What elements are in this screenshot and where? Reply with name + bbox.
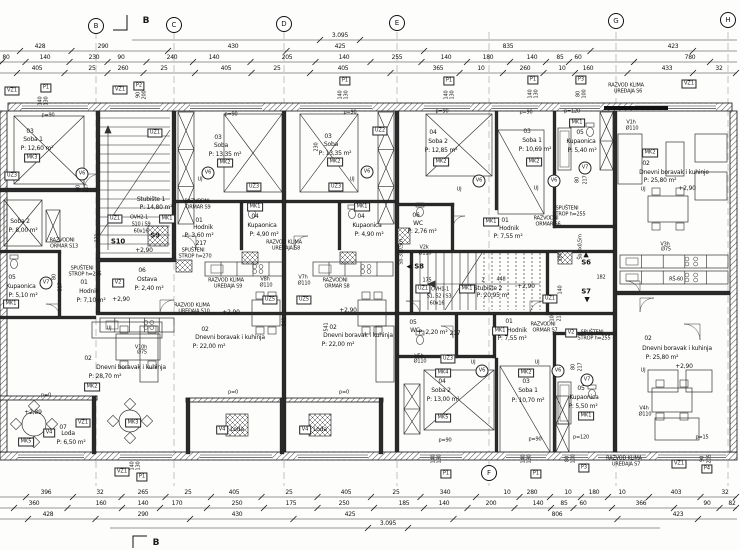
room-label: 01 [501, 218, 508, 224]
room-label: 02 [644, 336, 651, 342]
dim-label: 405 [341, 490, 352, 496]
dim-label: 32 [721, 490, 728, 496]
tag-box: P1 [530, 470, 541, 479]
room-label: P: 2,40 m² [134, 286, 163, 292]
room-label: P: 4,90 m² [354, 232, 383, 238]
dim-label: 180 [589, 490, 600, 496]
dim-label: 260 [520, 66, 531, 72]
dim-label: 250 [339, 501, 350, 507]
tag-box: P1 [440, 470, 451, 479]
room-label: P: 22,00 m² [193, 344, 226, 350]
room-label: S10 [111, 239, 125, 246]
room-label: Ø110 [639, 413, 652, 418]
tag-box: MK2 [433, 158, 449, 167]
dim-label: 90 [703, 501, 710, 507]
room-label: +2,90 [675, 364, 692, 370]
room-label: 130 [528, 455, 533, 464]
tag-box: MK1 [492, 327, 508, 336]
room-label: 90 [701, 456, 706, 462]
room-label: 02 [201, 327, 208, 333]
room-label: STROP h=295 [69, 273, 102, 278]
room-label: UJ [107, 327, 112, 332]
vent-circle: V7 [581, 374, 594, 387]
room-label: UREĐAJA S8 [272, 247, 300, 252]
tag-box: VZ1 [75, 419, 90, 428]
tag-box: P1 [443, 77, 454, 86]
room-label: p=0 [41, 394, 51, 399]
room-label: P: 7,55 m² [497, 336, 526, 342]
room-label: 05 [577, 386, 584, 392]
grid-bubble-f: F [481, 465, 497, 481]
dim-label: 255 [392, 55, 403, 61]
tag-box: V4 [299, 426, 311, 435]
room-label: UREĐAJA S7 [612, 463, 640, 468]
tag-box: MK1 [459, 285, 475, 294]
room-label: WC [413, 221, 423, 227]
dim-label: 32 [715, 66, 722, 72]
room-label: 05 [576, 130, 583, 136]
dim-label: 250 [232, 501, 243, 507]
room-label: P: 22,00 m² [322, 342, 355, 348]
tag-box: UZ3 [440, 355, 455, 364]
room-label: P: 10,69 m² [519, 147, 552, 153]
room-label: UJ [641, 188, 646, 193]
room-label: ▼ [584, 297, 589, 304]
dim-label: 140 [339, 55, 350, 61]
tag-box: UZ1 [415, 285, 430, 294]
room-label: Dnevni boravak i kuhinje [639, 170, 709, 176]
room-label: 60x16 [430, 302, 445, 307]
vent-circle: V6 [202, 167, 215, 180]
dim-label: 260 [118, 66, 129, 72]
dim-label: 835 [503, 44, 514, 50]
room-label: UJ [457, 188, 462, 193]
vent-circle: V6 [473, 175, 486, 188]
room-label: 230 [315, 143, 320, 152]
room-label: UREĐAJA S6 [614, 90, 642, 95]
dim-label: 425 [345, 512, 356, 518]
dim-label: 25 [88, 66, 95, 72]
room-label: 175 [423, 279, 432, 284]
dim-label: 403 [671, 490, 682, 496]
room-label: Soba 1 [23, 137, 43, 143]
dim-label: 140 [441, 55, 452, 61]
room-label: +2,90 [222, 310, 239, 316]
room-label: 130 [137, 462, 142, 471]
room-label: P: 12,85 m² [425, 148, 458, 154]
vent-circle: V6 [548, 175, 561, 188]
tag-box: MK5 [435, 414, 451, 423]
room-label: p=90 [439, 439, 452, 444]
room-label: UREĐAJA S9 [214, 285, 242, 290]
room-label: 03 [324, 134, 331, 140]
room-label: Ø110 [260, 284, 273, 289]
vent-circle: V6 [76, 168, 89, 181]
tag-box: UZ3 [4, 172, 19, 181]
dim-label: 140 [138, 501, 149, 507]
room-label: 130 [438, 455, 443, 464]
room-label: Soba 1 [518, 388, 538, 394]
tag-box: P2 [133, 82, 144, 91]
room-label: 180 [559, 253, 564, 262]
grid-bubble-d: D [276, 16, 292, 32]
room-label: 448 [497, 278, 506, 283]
dim-label: 10 [618, 490, 625, 496]
room-label: P: 7,10 m² [76, 298, 105, 304]
room-label: p=90 [436, 110, 449, 115]
room-label: Soba 1 [522, 138, 542, 144]
dim-label: 80 [2, 55, 9, 61]
room-label: Ø110 [626, 127, 639, 132]
room-label: p=120 [564, 110, 580, 115]
room-label: 03 [214, 135, 221, 141]
dim-label: 10 [477, 66, 484, 72]
room-label: Kupaonica [352, 223, 381, 229]
dim-label: 170 [172, 501, 183, 507]
room-label: ORMAR S9 [186, 206, 211, 211]
room-label: Hodnik [193, 225, 213, 231]
room-label: 541 [283, 318, 288, 327]
tag-box: UZ5 [296, 296, 311, 305]
room-label: Soba [324, 142, 338, 148]
dim-label: 405 [229, 490, 240, 496]
tag-box: P1 [527, 76, 538, 85]
room-label: Hodnik [507, 328, 527, 334]
dim-label: 430 [228, 44, 239, 50]
room-label: S7 [581, 289, 591, 296]
room-label: Kupaonica [6, 284, 35, 290]
dim-label: 25 [160, 66, 167, 72]
tag-box: VZ1 [671, 460, 686, 469]
vent-circle: V6 [476, 365, 489, 378]
floor-plan-page: 03Soba 1P: 12,60 m²Soba 2P: 8,00 m²05Kup… [0, 0, 740, 550]
room-label: Dnevni boravak i kuhinja [323, 333, 393, 339]
room-label: 217 [450, 331, 461, 337]
room-label: 02 [329, 325, 336, 331]
room-label: 100 [583, 90, 588, 99]
dim-label: 428 [43, 512, 54, 518]
room-label: UJ [535, 361, 540, 366]
room-label: 205 [708, 455, 713, 464]
room-label: 01 [505, 319, 512, 325]
tag-box: MK1 [569, 119, 585, 128]
tag-box: MK2 [217, 159, 233, 168]
room-label: P: 3,60 m² [184, 233, 213, 239]
room-label: P: 13,00 m² [427, 397, 460, 403]
dim-label: 423 [673, 512, 684, 518]
tag-box: UZ3 [328, 183, 343, 192]
dim-label: 290 [138, 512, 149, 518]
tag-box: MK3 [125, 419, 141, 428]
vent-circle: V6 [552, 365, 565, 378]
dim-label: 3.095 [380, 521, 396, 527]
tag-box: MK1 [3, 300, 19, 309]
dim-label: 430 [232, 512, 243, 518]
room-label: STROP h=255 [578, 337, 611, 342]
room-label: Soba 2 [428, 139, 448, 145]
room-label: 04 [357, 214, 364, 220]
tag-box: MK1 [483, 218, 499, 227]
dim-label: 428 [35, 44, 46, 50]
room-label: 80 [576, 177, 581, 183]
room-label: 05 [8, 275, 15, 281]
dim-label: 205 [282, 55, 293, 61]
room-label: Soba 2 [431, 388, 451, 394]
room-label: P: 5,50 m² [568, 404, 597, 410]
dim-label: 780 [685, 55, 696, 61]
dim-label: 180 [483, 55, 494, 61]
tag-box: P3 [578, 464, 589, 473]
room-label: ORMAR S13 [50, 245, 78, 250]
room-label: p=90 [529, 438, 542, 443]
room-label: Šb-3x0,5m [400, 239, 405, 264]
room-label: 2 [482, 279, 485, 284]
section-marker-b: B [143, 16, 150, 26]
dim-label: 60 [579, 501, 586, 507]
dim-label: 423 [668, 44, 679, 50]
room-label: Stubište 1 [137, 197, 165, 203]
room-label: 02 [642, 161, 649, 167]
dim-label: 140 [40, 55, 51, 61]
room-label: Ø110 [414, 360, 427, 365]
tag-box: P3 [575, 76, 586, 85]
dim-label: 140 [533, 501, 544, 507]
room-label: P: 14,80 m² [140, 205, 173, 211]
room-label: STROP h=255 [553, 213, 586, 218]
dim-label: 405 [338, 66, 349, 72]
room-label: S8 [414, 264, 424, 271]
tag-box: V2 [112, 279, 124, 288]
tag-box: V2 [565, 329, 577, 338]
room-label: 130 [45, 97, 50, 106]
room-label: 217 [584, 176, 589, 185]
dim-label: 185 [399, 501, 410, 507]
room-label: Dnevni boravak i kuhinja [195, 335, 265, 341]
dim-label: 25 [392, 490, 399, 496]
room-label: UJ [534, 187, 539, 192]
room-label: 217 [85, 184, 90, 193]
room-label: UJ [641, 369, 646, 374]
room-label: Šb-3x0,5m [579, 234, 584, 259]
room-label: UREĐAJA S10 [178, 310, 209, 315]
room-label: 130 [535, 90, 540, 99]
tag-box: VZ1 [114, 468, 129, 477]
dim-label: 366 [636, 501, 647, 507]
plan-labels: 03Soba 1P: 12,60 m²Soba 2P: 8,00 m²05Kup… [0, 0, 740, 550]
tag-box: MK1 [247, 203, 263, 212]
dim-label: 200 [486, 501, 497, 507]
room-label: 06 [138, 268, 145, 274]
tag-box: UZ1 [542, 295, 557, 304]
room-label: P: 2,76 m² [407, 229, 436, 235]
room-label: 04 [438, 379, 445, 385]
room-label: OVH2-1 [130, 216, 148, 221]
tag-box: MK4 [435, 369, 451, 378]
tag-box: MK2 [518, 369, 534, 378]
room-label: +2,89 [24, 410, 41, 416]
dim-label: 140 [439, 501, 450, 507]
room-label: P: 8,00 m² [8, 228, 37, 234]
dim-label: 405 [32, 66, 43, 72]
room-label: P: 25,80 m² [646, 355, 679, 361]
room-label: 200 [143, 91, 148, 100]
dim-label: 85 [556, 55, 563, 61]
dim-label: 25 [273, 66, 280, 72]
room-label: p=90 [225, 113, 238, 118]
grid-bubble-e: E [389, 15, 405, 31]
room-label: +2,90 [678, 186, 695, 192]
room-label: P: 12,60 m² [21, 146, 54, 152]
dim-label: 265 [138, 490, 149, 496]
tag-box: MK5 [18, 438, 34, 447]
room-label: 217 [196, 241, 207, 247]
room-label: P: 20,95 m² [477, 293, 510, 299]
room-label: UJ [198, 178, 203, 183]
room-label: Kupaonica [566, 139, 595, 145]
dim-label: 365 [433, 66, 444, 72]
dim-label: 90 [117, 55, 124, 61]
room-label: 02 [84, 356, 91, 362]
room-label: OVH1-1 [431, 288, 449, 293]
room-label: ▲ [583, 252, 588, 259]
room-label: P: 2,20 m² [418, 330, 447, 336]
dim-label: 85 [560, 501, 567, 507]
room-label: Hodnik [79, 289, 99, 295]
room-label: UJ [350, 178, 355, 183]
tag-box: V4 [216, 426, 228, 435]
tag-box: MK3 [24, 154, 40, 163]
dim-label: 3.095 [332, 33, 348, 39]
dim-label: 160 [96, 501, 107, 507]
tag-box: MK1 [578, 412, 594, 421]
room-label: 130 [345, 91, 350, 100]
room-label: Ø110 [298, 282, 311, 287]
room-label: Loda [230, 427, 244, 433]
tag-box: UZ1 [147, 129, 162, 138]
dim-label: 10 [503, 490, 510, 496]
room-label: P: 10,70 m² [512, 398, 545, 404]
dim-label: 433 [662, 66, 673, 72]
dim-label: 160 [583, 66, 594, 72]
tag-box: VZ1 [4, 87, 19, 96]
dim-label: 806 [552, 512, 563, 518]
grid-bubble-b: B [88, 18, 104, 34]
room-label: Ø75 [661, 248, 671, 253]
room-label: 01 [80, 280, 87, 286]
room-label: Loda [313, 427, 327, 433]
room-label: 80 [53, 274, 58, 280]
room-label: S6 [581, 260, 591, 267]
tag-box: UZ3 [246, 183, 261, 192]
room-label: Soba [214, 143, 228, 149]
dim-label: 60 [574, 55, 581, 61]
room-label: 04 [429, 130, 436, 136]
room-label: +2,90 [135, 248, 152, 254]
room-label: P: 5,40 m² [567, 148, 596, 154]
tag-box: UZ2 [372, 127, 387, 136]
tag-box: P1 [136, 473, 147, 482]
dim-label: 32 [96, 490, 103, 496]
vent-circle: V6 [361, 166, 374, 179]
dim-label: 340 [440, 490, 451, 496]
room-label: 217 [558, 313, 563, 322]
dim-label: 360 [29, 501, 40, 507]
vent-circle: V7 [579, 162, 592, 175]
room-label: P: 13,35 m² [209, 152, 242, 158]
tag-box: P4 [701, 465, 712, 474]
tag-box: P1 [339, 77, 350, 86]
dim-label: 10 [558, 66, 565, 72]
dim-label: 405 [221, 66, 232, 72]
room-label: Soba 2 [10, 219, 30, 225]
room-label: p=120 [573, 436, 589, 441]
room-label: S9 [150, 233, 160, 240]
room-label: ORMAR S7 [533, 329, 558, 334]
room-label: +2,90 [112, 297, 129, 303]
room-label: Dnevni boravak i kuhinja [96, 365, 166, 371]
grid-bubble-g: G [608, 13, 624, 29]
grid-bubble-h: H [720, 12, 736, 28]
room-label: +2,90 [517, 284, 534, 290]
room-label: p=90 [344, 111, 357, 116]
room-label: P: 25,80 m² [644, 178, 677, 184]
tag-box: P1 [40, 84, 51, 93]
room-label: Hodnik [499, 226, 519, 232]
room-label: 217 [59, 283, 64, 292]
dim-label: 230 [89, 55, 100, 61]
room-label: 06 [412, 213, 419, 219]
room-label: P: 5,10 m² [8, 293, 37, 299]
room-label: P: 13,35 m² [319, 151, 352, 157]
room-label: 140 [559, 286, 564, 295]
tag-box: UZ5 [262, 296, 277, 305]
section-marker-b: B [153, 538, 160, 548]
room-label: Ø75 [137, 351, 147, 356]
room-label: 80 [77, 185, 82, 191]
room-label: 182 [597, 276, 606, 281]
room-label: p=0 [228, 391, 238, 396]
tag-box: MK2 [642, 149, 658, 158]
room-label: ORMAR S6 [536, 223, 561, 228]
room-label: P: 28,70 m² [89, 374, 122, 380]
room-label: P: 6,50 m² [56, 440, 85, 446]
room-label: S1, S2 i S3 [427, 295, 452, 300]
tag-box: MK1 [159, 215, 175, 224]
tag-box: VZ1 [112, 86, 127, 95]
dim-label: 140 [527, 55, 538, 61]
room-label: 541 [325, 323, 330, 332]
room-label: STROP h=270 [179, 255, 212, 260]
room-label: p=90 [520, 111, 533, 116]
dim-label: 10 [564, 490, 571, 496]
room-label: UJ [471, 361, 476, 366]
room-label: P: 7,55 m² [493, 234, 522, 240]
room-label: Ostava [137, 277, 157, 283]
dim-label: 82 [728, 501, 735, 507]
dim-label: 140 [209, 55, 220, 61]
room-label: 03 [522, 379, 529, 385]
dim-label: 425 [335, 44, 346, 50]
tag-box: MK2 [526, 158, 542, 167]
room-label: 271 [96, 234, 101, 243]
dim-label: 240 [167, 55, 178, 61]
room-label: p=90 [42, 114, 55, 119]
room-label: 100 [572, 455, 577, 464]
room-label: RŠ-60 [669, 278, 683, 283]
room-label: 03 [26, 129, 33, 135]
room-label: p=15 [696, 436, 709, 441]
tag-box: UZ1 [107, 215, 122, 224]
